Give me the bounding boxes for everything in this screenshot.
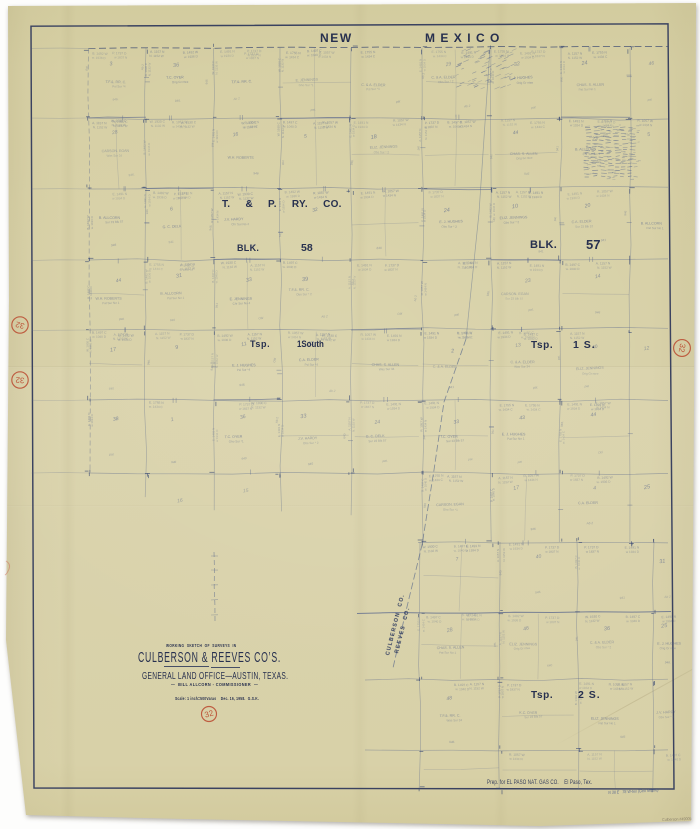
svg-text:946.: 946. [350,159,355,166]
svg-text:N. 1132 W: N. 1132 W [585,619,600,624]
svg-text:Obs Sur * 2: Obs Sur * 2 [658,715,674,720]
svg-text:w 1837 N: w 1837 N [546,620,559,624]
svg-text:w 1837 N: w 1837 N [430,194,443,199]
svg-text:w. 1936 D: w. 1936 D [507,618,522,622]
svg-text:w 1837 N: w 1837 N [586,549,599,553]
svg-text:44: 44 [115,277,122,284]
svg-text:w. 1434 C: w. 1434 C [429,478,444,483]
svg-text:N. 1152 W: N. 1152 W [469,686,484,690]
svg-text:pat.: pat. [532,385,539,389]
svg-text:Psl Sur *4: Psl Sur *4 [237,368,251,372]
svg-text:w. 1936 D: w. 1936 D [153,195,168,199]
svg-text:w. 1434 C: w. 1434 C [149,405,164,409]
svg-text:w 1934 D: w 1934 D [90,414,94,426]
svg-text:w. 1040 D: w. 1040 D [92,335,107,339]
svg-text:Sur 23 Blk 57: Sur 23 Blk 57 [105,220,124,225]
svg-text:Orig Gr ntee: Orig Gr ntee [516,156,533,161]
svg-text:w 1934 D: w 1934 D [422,59,426,71]
svg-text:w. 1040 D: w. 1040 D [667,757,682,761]
svg-text:44: 44 [590,412,597,419]
svg-text:Orig Gr ntee: Orig Gr ntee [172,80,189,84]
svg-text:946: 946 [620,735,626,739]
svg-text:w. 1936 D: w. 1936 D [218,338,233,342]
svg-text:C. & A. ELDER: C. & A. ELDER [433,365,458,369]
svg-text:32: 32 [677,343,688,354]
svg-text:18: 18 [370,134,378,141]
svg-text:941: 941 [449,385,455,389]
svg-text:w 1434 N: w 1434 N [383,193,396,197]
svg-text:946: 946 [170,318,176,322]
svg-text:946: 946 [530,527,536,531]
svg-text:w. 1434 C: w. 1434 C [499,407,514,411]
svg-text:32: 32 [513,61,520,68]
svg-text:7: 7 [455,556,459,562]
svg-text:Obl: Obl [281,160,285,165]
svg-text:Ab 2: Ab 2 [463,104,471,109]
svg-text:pat: pat [553,217,558,222]
svg-text:Ab 2: Ab 2 [140,63,145,70]
svg-text:Pat Sur No 1: Pat Sur No 1 [579,87,597,92]
svg-text:pat: pat [395,99,401,103]
svg-text:640: 640 [241,456,247,461]
svg-text:w 1434 N: w 1434 N [323,125,336,129]
svg-text:w 1434 N: w 1434 N [596,193,609,198]
svg-text:pat.: pat. [527,307,534,312]
svg-text:16: 16 [232,131,239,138]
svg-text:Obs Sur * 2: Obs Sur * 2 [438,79,454,84]
svg-text:25: 25 [643,484,652,491]
svg-text:w 1837 N: w 1837 N [248,53,261,57]
svg-text:33: 33 [300,413,308,420]
svg-text:Pat Sur No 1: Pat Sur No 1 [439,651,457,655]
svg-text:w. 1434 C: w. 1434 C [562,431,566,444]
svg-text:Was Sur 34: Was Sur 34 [514,364,530,368]
svg-text:E. J. HUGHES: E. J. HUGHES [509,75,533,80]
svg-text:941: 941 [619,596,625,601]
svg-text:w 1934 D: w 1934 D [466,548,480,553]
svg-text:w 1934 D: w 1934 D [355,125,369,129]
svg-text:w 1934 D: w 1934 D [280,425,284,437]
svg-text:w. 1936 D: w. 1936 D [492,203,496,216]
svg-text:N. 1152 W: N. 1152 W [498,480,513,485]
svg-text:w. 1936 D: w. 1936 D [286,194,301,199]
svg-text:A. 1157 N: A. 1157 N [418,129,422,142]
svg-text:w 1837 N: w 1837 N [545,550,558,554]
svg-text:N. 1132 W: N. 1132 W [89,339,93,353]
svg-text:A. 1157 N: A. 1157 N [496,549,500,562]
svg-text:946: 946 [145,209,149,214]
svg-text:16: 16 [177,498,184,505]
svg-text:Was Sur 34: Was Sur 34 [106,154,122,158]
svg-text:946.: 946. [486,290,491,296]
svg-text:11: 11 [241,341,248,348]
svg-text:N. 1152 W: N. 1152 W [351,418,355,432]
svg-text:38: 38 [113,416,120,423]
svg-text:pat: pat [210,142,214,147]
svg-text:9: 9 [175,345,179,352]
svg-text:ELIZ. JENNINGS: ELIZ. JENNINGS [576,366,605,371]
svg-text:946.: 946. [665,660,671,664]
svg-text:946: 946 [524,172,530,176]
svg-text:946: 946 [205,79,209,84]
svg-text:640: 640 [278,232,283,238]
svg-text:946.: 946. [175,98,181,103]
svg-text:946.: 946. [208,224,213,230]
svg-text:E. 1491 N: E. 1491 N [143,194,147,207]
svg-text:ELIZ. JENNINGS: ELIZ. JENNINGS [370,145,399,150]
svg-text:w 1934 D: w 1934 D [570,123,584,127]
svg-text:J.V. HARDY: J.V. HARDY [224,217,244,222]
svg-text:T.F.&. RR. C.: T.F.&. RR. C. [231,79,252,84]
svg-text:Obl: Obl [258,316,263,320]
svg-text:946: 946 [253,171,259,175]
svg-text:N. 1152 W: N. 1152 W [93,125,108,129]
svg-text:24: 24 [580,60,588,67]
svg-text:Sur 23 Blk 57: Sur 23 Blk 57 [368,439,386,444]
svg-text:640: 640 [342,433,346,438]
svg-text:Obl: Obl [272,357,277,363]
svg-text:pat: pat [453,312,459,316]
svg-text:pat: pat [530,105,536,110]
svg-text:33: 33 [245,277,252,284]
svg-text:941: 941 [555,146,559,152]
svg-text:w 1837 N: w 1837 N [532,54,545,58]
svg-text:pat.: pat. [559,76,563,81]
svg-text:pat.: pat. [493,642,497,647]
svg-text:4: 4 [593,485,597,491]
svg-text:w. 1040 D: w. 1040 D [626,619,641,623]
svg-text:w 1934 D: w 1934 D [530,268,544,272]
svg-text:Pat Sur No 1: Pat Sur No 1 [167,296,185,301]
svg-text:Gho Sur *1: Gho Sur *1 [229,439,244,443]
svg-text:44: 44 [513,130,519,137]
svg-text:946.: 946. [449,740,455,744]
svg-text:W. 1930 C: W. 1930 C [276,121,280,136]
svg-text:N. 1152 W: N. 1152 W [502,548,506,562]
svg-text:w. 1040 D: w. 1040 D [215,270,219,283]
svg-text:640: 640 [547,663,553,668]
svg-text:17: 17 [110,347,118,354]
svg-text:w. 1936 D: w. 1936 D [597,480,612,484]
svg-text:Pat Sur No 1: Pat Sur No 1 [507,437,525,441]
svg-text:32: 32 [14,319,25,330]
svg-text:48: 48 [446,695,453,702]
svg-text:946: 946 [595,310,600,314]
svg-text:w 1434 N: w 1434 N [424,420,428,432]
svg-text:Was Sur 34: Was Sur 34 [379,367,395,372]
svg-text:40: 40 [535,554,542,561]
svg-text:B. 1492 W: B. 1492 W [143,140,147,154]
svg-text:Pat Sur No 1: Pat Sur No 1 [598,721,616,725]
svg-text:946: 946 [171,460,176,464]
svg-text:N. 1132 W: N. 1132 W [151,124,166,128]
svg-text:C.A. ELDER: C.A. ELDER [299,357,320,362]
svg-text:B. ALLCORN: B. ALLCORN [575,147,597,152]
svg-text:N. 1132 W: N. 1132 W [148,62,152,76]
svg-text:36: 36 [173,62,181,69]
svg-text:N. 1132 W: N. 1132 W [251,405,265,409]
svg-text:20: 20 [583,202,591,209]
svg-text:640: 640 [308,462,314,467]
svg-text:946: 946 [423,502,428,508]
svg-text:Pat Sur No 1: Pat Sur No 1 [102,301,120,305]
svg-text:Psl Sur *4: Psl Sur *4 [112,84,126,88]
svg-text:w. 1040 D: w. 1040 D [566,267,581,271]
svg-text:w. 1040 D: w. 1040 D [428,620,443,624]
svg-text:N. 1132 W: N. 1132 W [222,265,237,270]
svg-text:5: 5 [304,134,308,140]
svg-text:Sur 23 Blk 57: Sur 23 Blk 57 [446,438,464,443]
svg-text:w 1434 N: w 1434 N [459,124,472,129]
svg-text:w 1934 D: w 1934 D [464,265,478,270]
svg-text:Chr Sur No 4: Chr Sur No 4 [231,222,249,226]
svg-text:E. 1755 N: E. 1755 N [417,617,421,630]
svg-text:pat.: pat. [574,636,579,642]
svg-text:3: 3 [109,61,113,67]
svg-text:W.H. ROBERTS: W.H. ROBERTS [228,156,255,160]
svg-text:w 1434 N: w 1434 N [318,55,331,59]
svg-text:640: 640 [109,387,114,391]
svg-text:w 1934 D: w 1934 D [148,194,152,206]
svg-text:w 1434 N: w 1434 N [361,337,374,341]
svg-text:5: 5 [647,132,651,139]
svg-text:w 1934 D: w 1934 D [562,61,566,73]
svg-text:46: 46 [523,625,530,632]
svg-text:N. 1132 W: N. 1132 W [215,61,219,75]
svg-text:w. 1040 D: w. 1040 D [491,71,495,84]
svg-text:w 1837 N: w 1837 N [601,124,614,128]
svg-text:pat: pat [584,384,589,388]
svg-text:w 1434 N: w 1434 N [424,283,428,295]
svg-text:36: 36 [239,414,246,421]
svg-text:941: 941 [168,240,174,245]
svg-text:Orig Gr ntee: Orig Gr ntee [660,646,677,650]
svg-text:Ab 2: Ab 2 [275,416,280,423]
svg-text:N. 1152 W: N. 1152 W [597,266,611,270]
svg-text:28: 28 [111,129,119,136]
svg-text:w 1934 D: w 1934 D [467,618,481,622]
svg-text:N. 1152 W: N. 1152 W [568,56,582,60]
svg-text:Orig Gr ntee: Orig Gr ntee [582,372,599,376]
svg-text:46: 46 [648,60,655,67]
svg-text:Gho Sur *1: Gho Sur *1 [443,508,458,512]
svg-text:w 1434 N: w 1434 N [216,211,220,223]
svg-text:N. 1152 W: N. 1152 W [497,195,511,199]
svg-text:N. 1132 W: N. 1132 W [424,549,439,554]
svg-text:w. 1040 D: w. 1040 D [283,125,298,129]
svg-text:640: 640 [498,570,502,575]
svg-text:640: 640 [489,154,493,160]
svg-text:w. 1434 C: w. 1434 C [459,336,474,340]
svg-text:Obl: Obl [397,311,403,316]
svg-text:Was Sur 34: Was Sur 34 [446,718,462,722]
svg-text:w 1934 D: w 1934 D [351,125,355,137]
svg-text:w 1934 D: w 1934 D [358,267,372,271]
svg-text:A. 1157 N: A. 1157 N [210,353,214,366]
svg-text:w 1837 N: w 1837 N [501,686,505,698]
svg-text:Obs Sur * 2: Obs Sur * 2 [504,220,520,225]
svg-text:w 1934 D: w 1934 D [112,196,126,200]
svg-text:6: 6 [170,206,174,212]
svg-text:24: 24 [442,207,450,214]
svg-text:w. 1434 C: w. 1434 C [285,55,300,59]
svg-text:Ab 2: Ab 2 [663,595,671,599]
svg-text:pat.: pat. [310,108,316,112]
svg-text:E. JENNINGS: E. JENNINGS [295,77,318,82]
svg-text:w. 1434 C: w. 1434 C [527,408,542,412]
svg-text:B. ALLCORN: B. ALLCORN [641,222,663,226]
svg-text:w 1434 N: w 1434 N [596,405,609,409]
svg-text:Ab 2: Ab 2 [320,314,328,318]
svg-text:w. 1936 D: w. 1936 D [92,56,107,60]
svg-text:E. J. HUGHES: E. J. HUGHES [657,642,681,646]
svg-text:CARSON. EGAN: CARSON. EGAN [436,502,464,507]
svg-text:w 1934 D: w 1934 D [626,550,640,554]
svg-text:w 1934 D: w 1934 D [497,335,511,340]
svg-text:w 1837 N: w 1837 N [114,55,127,59]
svg-text:33: 33 [453,419,460,426]
svg-text:23: 23 [524,278,532,285]
svg-text:N. 1152 W: N. 1152 W [497,265,512,270]
svg-text:N. 1152 W: N. 1152 W [250,267,265,271]
svg-text:946.: 946. [239,383,245,388]
svg-text:Ab 2: Ab 2 [413,295,418,302]
svg-text:w. 1434 C: w. 1434 C [244,124,259,129]
svg-text:N. 1152 W: N. 1152 W [149,54,164,58]
svg-text:w. 1040 D: w. 1040 D [577,557,581,570]
svg-text:Pat Sur No 1: Pat Sur No 1 [646,226,664,230]
svg-text:pat: pat [108,452,114,456]
svg-text:w. 1936 D: w. 1936 D [90,216,94,229]
svg-text:Psl Sur *4: Psl Sur *4 [366,87,380,92]
svg-text:pat.: pat. [422,434,426,439]
svg-text:w 1934 D: w 1934 D [215,430,219,442]
svg-text:Ab 2: Ab 2 [232,96,240,101]
svg-text:pat.: pat. [467,457,474,462]
svg-text:w. 1936 D: w. 1936 D [147,143,151,156]
svg-text:w. 1434 C: w. 1434 C [531,125,546,129]
svg-text:946.: 946. [128,173,135,178]
svg-text:Ab 2: Ab 2 [586,521,594,525]
svg-text:Ab 2: Ab 2 [328,389,336,393]
svg-text:N. 1152 W: N. 1152 W [424,126,428,140]
svg-text:31: 31 [175,273,182,280]
svg-text:36: 36 [604,626,612,633]
svg-text:Orig Gr ntee: Orig Gr ntee [517,81,534,85]
svg-text:640: 640 [376,246,382,250]
svg-text:N. 1132 W: N. 1132 W [113,124,128,128]
svg-text:28: 28 [445,627,453,634]
svg-text:w 1837 N: w 1837 N [507,687,520,691]
svg-text:2: 2 [450,348,455,354]
svg-text:pat.: pat. [557,355,561,360]
svg-text:946: 946 [111,243,117,248]
svg-text:N. 1152 W: N. 1152 W [215,354,219,368]
svg-text:pat: pat [416,146,420,151]
svg-text:w 1434 N: w 1434 N [393,122,406,127]
svg-text:w. 1040 D: w. 1040 D [423,478,427,491]
svg-text:N. 1152 W: N. 1152 W [619,687,634,692]
svg-text:Obl: Obl [492,217,497,222]
svg-text:14: 14 [594,273,601,280]
svg-text:pat: pat [84,66,89,71]
svg-text:Sur 23 Blk 57: Sur 23 Blk 57 [524,714,543,719]
svg-text:w. 1040 D: w. 1040 D [455,687,470,691]
svg-text:w. 1040 D: w. 1040 D [492,488,496,501]
svg-text:w 1837 N: w 1837 N [361,405,374,409]
svg-text:946.: 946. [112,97,119,102]
svg-text:13: 13 [515,342,522,349]
svg-text:N. 1152 W: N. 1152 W [587,757,602,761]
svg-text:Ab 2: Ab 2 [351,279,355,286]
svg-text:10: 10 [512,203,520,210]
svg-text:Obs Sur * 2: Obs Sur * 2 [296,292,312,296]
svg-text:29: 29 [444,61,452,68]
svg-text:N. 1132 W: N. 1132 W [281,59,285,73]
svg-text:E. J. HUGHES: E. J. HUGHES [439,219,463,224]
svg-text:N. 1152 W: N. 1152 W [503,122,518,127]
svg-text:G. C. DELK: G. C. DELK [162,224,182,229]
svg-text:w. 1434 C: w. 1434 C [422,619,426,632]
svg-text:Gho Sur *1: Gho Sur *1 [299,83,314,87]
svg-text:43: 43 [519,415,525,422]
svg-text:N. 1132 W: N. 1132 W [180,124,195,129]
svg-text:w. 1434 C: w. 1434 C [593,55,608,60]
svg-text:Obs Sur * 2: Obs Sur * 2 [596,645,612,649]
svg-text:w 1837 N: w 1837 N [570,478,583,482]
svg-text:w 1934 D: w 1934 D [461,55,475,60]
svg-text:946: 946 [210,365,215,371]
svg-text:w 1934 D: w 1934 D [221,54,235,59]
svg-text:w 1934 D: w 1934 D [426,405,440,409]
svg-text:24: 24 [373,419,381,426]
svg-text:CHAS. S. ALLEN: CHAS. S. ALLEN [437,645,465,650]
svg-text:pat: pat [646,98,652,102]
svg-text:17: 17 [513,485,521,492]
svg-text:CARSON. EGAN: CARSON. EGAN [501,292,529,296]
svg-text:w 1837 N: w 1837 N [384,267,397,272]
svg-text:w 1934 D: w 1934 D [567,196,581,201]
svg-text:Obs Sur * 2: Obs Sur * 2 [303,441,319,445]
svg-text:w 1934 D: w 1934 D [178,195,192,199]
svg-text:w 1934 D: w 1934 D [387,338,401,342]
svg-text:941: 941 [601,238,607,242]
svg-text:w 1934 D: w 1934 D [360,195,374,200]
svg-text:Obl: Obl [598,450,604,455]
svg-text:pat.: pat. [381,459,388,464]
svg-text:31: 31 [659,559,666,566]
svg-text:w 1434 N: w 1434 N [525,478,538,483]
svg-text:12: 12 [643,345,650,352]
svg-text:C. & A. ELDER: C. & A. ELDER [590,640,615,645]
svg-text:w 1934 D: w 1934 D [567,407,581,411]
svg-text:39: 39 [302,277,309,284]
svg-text:w 1934 D: w 1934 D [387,406,401,410]
svg-text:946.: 946. [535,590,542,595]
svg-text:w 1934 D: w 1934 D [424,336,438,340]
svg-text:946.: 946. [560,421,564,427]
svg-text:Orig Gr ntee: Orig Gr ntee [514,646,531,651]
svg-text:w 1434 N: w 1434 N [509,757,522,761]
svg-text:32: 32 [15,375,25,385]
svg-text:w 1934 D: w 1934 D [529,195,543,199]
svg-text:Chr Sur No 4: Chr Sur No 4 [233,301,251,306]
svg-text:N. 1152 W: N. 1152 W [180,266,195,271]
svg-text:w. 1040 D: w. 1040 D [283,265,298,269]
svg-text:N. 1152 W: N. 1152 W [502,630,506,644]
svg-text:w 1434 N: w 1434 N [639,123,652,127]
svg-text:N. 1152 W: N. 1152 W [113,336,128,340]
